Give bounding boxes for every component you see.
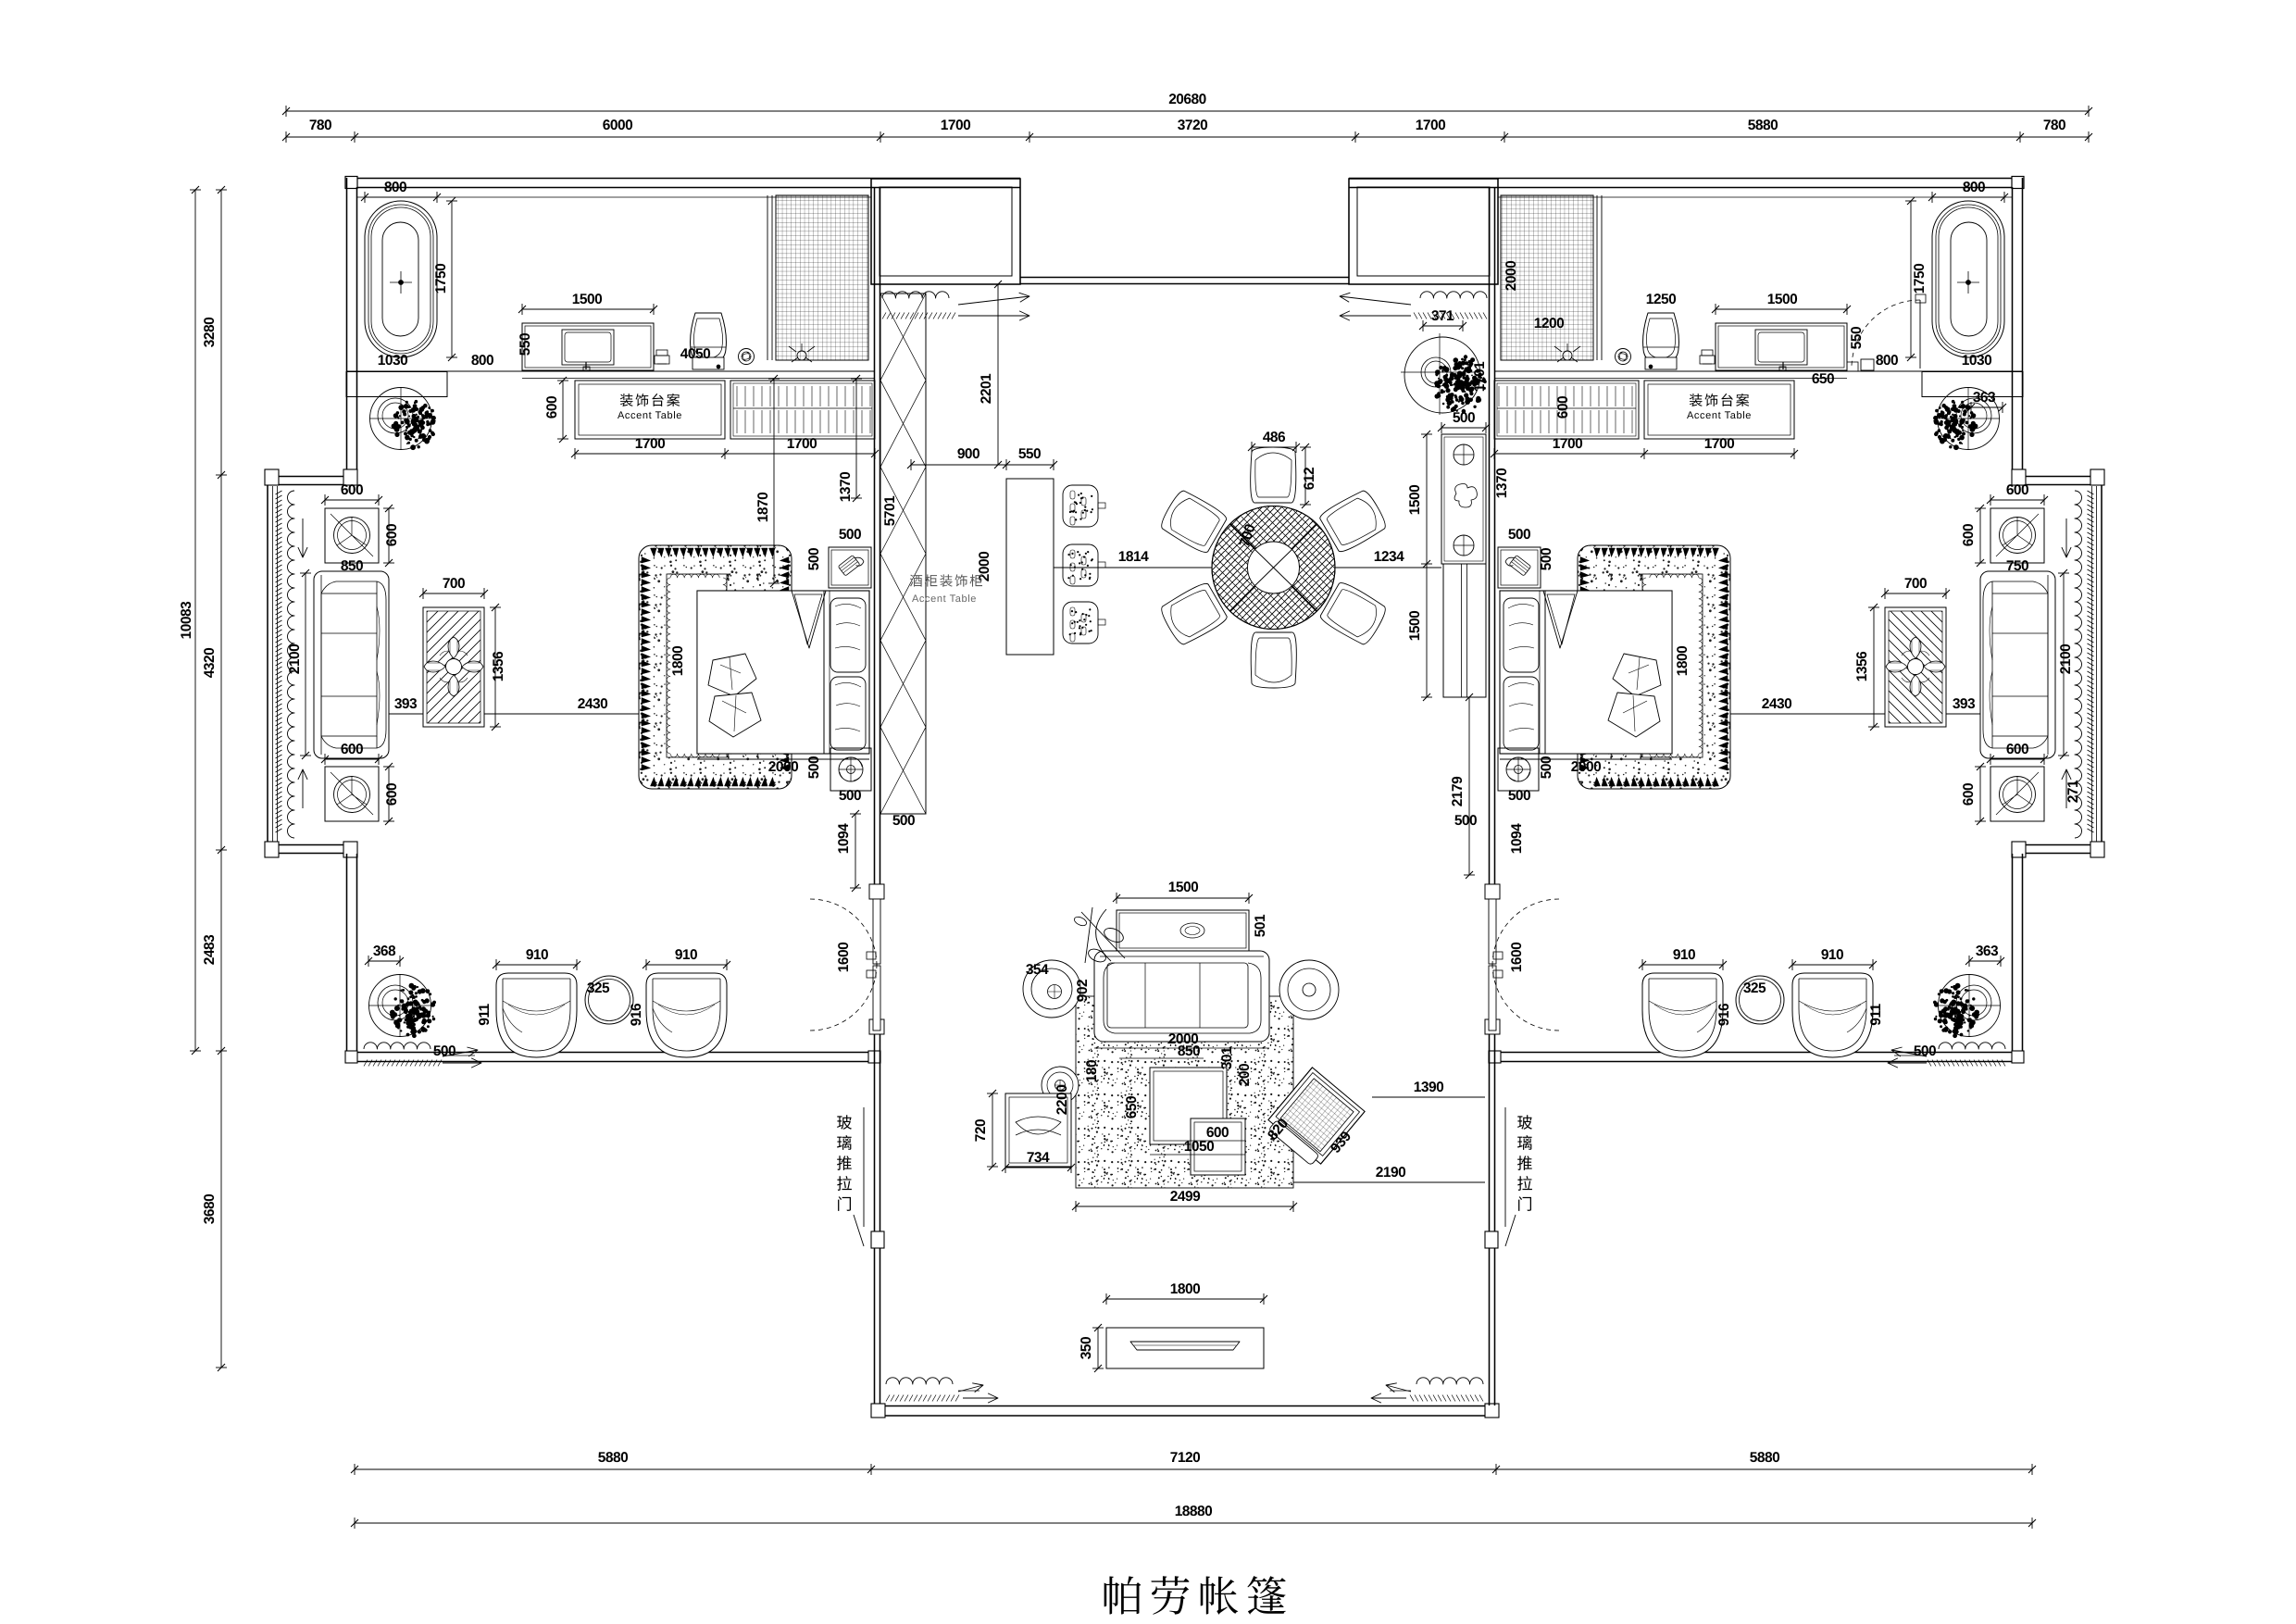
svg-text:916: 916	[629, 1003, 644, 1026]
svg-text:902: 902	[1075, 980, 1091, 1002]
svg-text:911: 911	[477, 1003, 493, 1025]
svg-text:2499: 2499	[1170, 1189, 1201, 1205]
svg-text:350: 350	[1079, 1337, 1094, 1359]
svg-text:2000: 2000	[1571, 759, 1601, 775]
svg-text:5880: 5880	[1750, 1450, 1779, 1466]
svg-text:1700: 1700	[1704, 436, 1734, 452]
svg-text:1500: 1500	[1407, 611, 1423, 641]
svg-text:916: 916	[1716, 1003, 1732, 1026]
svg-text:2483: 2483	[202, 934, 218, 965]
svg-text:850: 850	[1178, 1043, 1200, 1059]
svg-text:600: 600	[341, 482, 363, 498]
svg-text:2000: 2000	[977, 552, 992, 581]
svg-text:900: 900	[957, 446, 980, 462]
svg-text:1700: 1700	[1553, 436, 1582, 452]
svg-text:6000: 6000	[603, 118, 632, 133]
svg-text:550: 550	[1849, 327, 1865, 349]
svg-text:20680: 20680	[1168, 92, 1206, 107]
svg-text:301: 301	[1219, 1046, 1235, 1069]
svg-text:1700: 1700	[635, 436, 665, 452]
svg-text:1390: 1390	[1414, 1080, 1443, 1095]
svg-text:500: 500	[839, 527, 861, 543]
svg-text:1370: 1370	[838, 472, 854, 502]
svg-text:325: 325	[1743, 981, 1766, 996]
svg-text:1094: 1094	[1509, 823, 1525, 854]
svg-text:3680: 3680	[202, 1194, 218, 1224]
svg-text:180: 180	[1084, 1060, 1100, 1082]
svg-text:600: 600	[384, 783, 400, 806]
svg-text:650: 650	[1812, 371, 1834, 387]
svg-text:700: 700	[1904, 576, 1927, 592]
svg-text:1030: 1030	[378, 353, 407, 369]
svg-text:2100: 2100	[287, 644, 303, 674]
svg-text:500: 500	[839, 788, 861, 804]
svg-text:1094: 1094	[836, 823, 852, 854]
svg-text:910: 910	[1673, 947, 1695, 963]
svg-text:371: 371	[1431, 308, 1454, 324]
svg-text:1200: 1200	[1534, 316, 1564, 331]
svg-text:393: 393	[1953, 696, 1976, 712]
svg-text:1701: 1701	[1472, 361, 1488, 392]
svg-text:500: 500	[892, 813, 915, 829]
svg-text:1234: 1234	[1374, 549, 1404, 565]
svg-text:2200: 2200	[1054, 1085, 1070, 1115]
svg-text:4320: 4320	[202, 648, 218, 678]
svg-text:600: 600	[2006, 742, 2028, 757]
svg-text:720: 720	[973, 1119, 989, 1142]
svg-text:650: 650	[1124, 1096, 1140, 1118]
svg-text:800: 800	[1963, 180, 1985, 195]
svg-text:354: 354	[1026, 962, 1049, 978]
svg-text:271: 271	[2065, 780, 2081, 803]
svg-text:2430: 2430	[1762, 696, 1791, 712]
svg-text:4050: 4050	[680, 346, 710, 362]
svg-text:1030: 1030	[1962, 353, 1991, 369]
svg-text:363: 363	[1976, 943, 1999, 959]
svg-text:2430: 2430	[578, 696, 607, 712]
svg-text:600: 600	[384, 524, 400, 546]
svg-text:800: 800	[471, 353, 493, 369]
svg-text:550: 550	[518, 333, 533, 356]
svg-text:486: 486	[1263, 430, 1286, 445]
svg-text:750: 750	[2006, 558, 2028, 574]
svg-text:2100: 2100	[2058, 644, 2074, 674]
svg-text:5880: 5880	[1748, 118, 1778, 133]
svg-text:1500: 1500	[1168, 880, 1198, 895]
svg-text:500: 500	[1539, 756, 1554, 779]
svg-text:1600: 1600	[836, 943, 852, 972]
svg-text:800: 800	[1876, 353, 1898, 369]
svg-text:1700: 1700	[787, 436, 817, 452]
svg-text:1050: 1050	[1184, 1139, 1214, 1155]
svg-text:550: 550	[1018, 446, 1041, 462]
svg-text:2201: 2201	[979, 373, 994, 404]
svg-text:2179: 2179	[1450, 776, 1466, 806]
svg-text:1356: 1356	[491, 651, 506, 681]
svg-text:600: 600	[1555, 396, 1571, 418]
svg-text:500: 500	[1453, 410, 1475, 426]
svg-text:1250: 1250	[1646, 292, 1676, 307]
svg-text:3720: 3720	[1178, 118, 1207, 133]
svg-text:500: 500	[1539, 548, 1554, 570]
svg-text:2190: 2190	[1376, 1165, 1405, 1181]
svg-text:5880: 5880	[598, 1450, 628, 1466]
svg-text:800: 800	[384, 180, 406, 195]
svg-text:1600: 1600	[1509, 943, 1525, 972]
svg-text:325: 325	[587, 981, 610, 996]
svg-text:600: 600	[2006, 482, 2028, 498]
svg-text:500: 500	[433, 1043, 455, 1059]
svg-text:368: 368	[373, 943, 396, 959]
svg-text:1700: 1700	[1416, 118, 1445, 133]
svg-text:1800: 1800	[670, 646, 686, 676]
svg-text:1750: 1750	[1912, 264, 1928, 294]
svg-text:1800: 1800	[1170, 1281, 1200, 1297]
svg-text:393: 393	[394, 696, 418, 712]
svg-text:1870: 1870	[755, 493, 771, 522]
svg-text:780: 780	[2043, 118, 2065, 133]
svg-text:780: 780	[309, 118, 331, 133]
svg-text:600: 600	[544, 396, 560, 418]
svg-text:1356: 1356	[1854, 651, 1870, 681]
svg-text:363: 363	[1973, 390, 1996, 406]
svg-text:700: 700	[443, 576, 465, 592]
svg-text:500: 500	[806, 756, 822, 779]
svg-text:500: 500	[1508, 527, 1530, 543]
svg-text:500: 500	[806, 548, 822, 570]
svg-text:1814: 1814	[1118, 549, 1149, 565]
svg-text:Accent Table: Accent Table	[1687, 410, 1752, 421]
svg-text:500: 500	[1454, 813, 1477, 829]
svg-text:10083: 10083	[179, 601, 194, 639]
svg-text:910: 910	[1821, 947, 1843, 963]
svg-text:1800: 1800	[1675, 646, 1691, 676]
svg-text:600: 600	[1961, 783, 1977, 806]
svg-text:850: 850	[341, 558, 363, 574]
svg-text:1500: 1500	[572, 292, 602, 307]
svg-text:7120: 7120	[1170, 1450, 1200, 1466]
svg-text:600: 600	[1961, 524, 1977, 546]
svg-text:911: 911	[1868, 1003, 1884, 1025]
svg-text:734: 734	[1027, 1150, 1050, 1166]
svg-text:500: 500	[1914, 1043, 1936, 1059]
svg-text:600: 600	[341, 742, 363, 757]
svg-text:910: 910	[675, 947, 697, 963]
svg-text:500: 500	[1508, 788, 1530, 804]
svg-text:612: 612	[1302, 468, 1317, 490]
svg-text:1370: 1370	[1494, 468, 1510, 498]
svg-text:2000: 2000	[1504, 261, 1519, 291]
svg-text:Accent Table: Accent Table	[618, 410, 682, 421]
svg-text:Accent Table: Accent Table	[912, 593, 977, 605]
svg-text:2000: 2000	[768, 759, 798, 775]
svg-text:5701: 5701	[882, 495, 898, 526]
svg-text:1700: 1700	[941, 118, 970, 133]
svg-text:501: 501	[1253, 914, 1268, 937]
svg-text:200: 200	[1237, 1064, 1253, 1086]
svg-text:1750: 1750	[433, 264, 449, 294]
svg-text:1500: 1500	[1767, 292, 1797, 307]
svg-text:18880: 18880	[1175, 1504, 1213, 1519]
svg-text:910: 910	[526, 947, 548, 963]
svg-text:1500: 1500	[1407, 485, 1423, 515]
svg-text:3280: 3280	[202, 318, 218, 347]
